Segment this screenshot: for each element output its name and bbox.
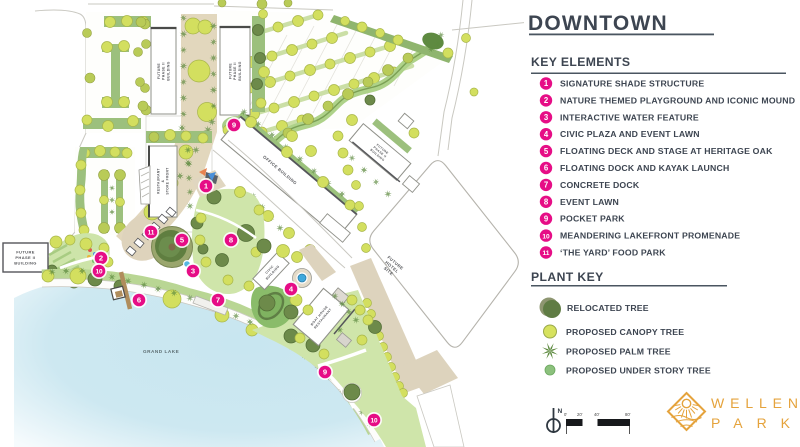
- svg-text:FUTURE: FUTURE: [229, 63, 233, 79]
- svg-text:7: 7: [544, 181, 548, 190]
- svg-text:NATURE THEMED PLAYGROUND AND I: NATURE THEMED PLAYGROUND AND ICONIC MOUN…: [560, 95, 795, 105]
- svg-text:FUTURE: FUTURE: [16, 249, 35, 254]
- svg-text:4: 4: [544, 130, 549, 139]
- svg-text:8: 8: [229, 236, 233, 245]
- svg-text:0′: 0′: [564, 412, 567, 417]
- svg-text:FUTURE: FUTURE: [157, 63, 161, 79]
- svg-text:2: 2: [544, 96, 549, 105]
- svg-text:6: 6: [544, 164, 549, 173]
- svg-text:10: 10: [542, 233, 550, 240]
- svg-text:80′: 80′: [625, 412, 631, 417]
- svg-text:RESTAURANT: RESTAURANT: [157, 168, 161, 194]
- svg-text:1: 1: [544, 79, 549, 88]
- svg-text:BUILDING: BUILDING: [14, 261, 37, 266]
- svg-text:11: 11: [543, 250, 550, 257]
- svg-text:5: 5: [544, 147, 549, 156]
- svg-text:DOWNTOWN: DOWNTOWN: [528, 12, 668, 35]
- svg-text:PLANT KEY: PLANT KEY: [531, 270, 604, 284]
- svg-text:PHASE II: PHASE II: [15, 255, 35, 260]
- svg-text:FLOATING DOCK AND KAYAK LAUNCH: FLOATING DOCK AND KAYAK LAUNCH: [560, 163, 729, 173]
- svg-text:PHASE II: PHASE II: [162, 62, 166, 80]
- svg-text:CIVIC PLAZA AND EVENT LAWN: CIVIC PLAZA AND EVENT LAWN: [560, 129, 700, 139]
- svg-text:&: &: [161, 179, 165, 182]
- svg-text:MEANDERING LAKEFRONT PROMENADE: MEANDERING LAKEFRONT PROMENADE: [560, 231, 740, 241]
- svg-text:PHASE II: PHASE II: [233, 62, 237, 80]
- svg-text:9: 9: [544, 214, 549, 223]
- svg-text:3: 3: [191, 267, 195, 276]
- svg-text:BUILDING: BUILDING: [238, 61, 242, 81]
- svg-text:3: 3: [544, 113, 549, 122]
- svg-text:PROPOSED PALM TREE: PROPOSED PALM TREE: [566, 347, 671, 357]
- svg-text:9: 9: [232, 121, 236, 130]
- svg-text:8: 8: [544, 198, 549, 207]
- svg-text:PROPOSED UNDER STORY TREE: PROPOSED UNDER STORY TREE: [566, 366, 711, 376]
- svg-text:CONCRETE DOCK: CONCRETE DOCK: [560, 180, 640, 190]
- svg-text:POCKET PARK: POCKET PARK: [560, 214, 625, 224]
- svg-text:SIGNATURE SHADE STRUCTURE: SIGNATURE SHADE STRUCTURE: [560, 79, 704, 89]
- svg-text:10: 10: [95, 269, 103, 276]
- svg-text:2: 2: [99, 254, 103, 263]
- svg-text:EVENT LAWN: EVENT LAWN: [560, 197, 619, 207]
- svg-text:7: 7: [216, 296, 220, 305]
- svg-text:STORE FRONT: STORE FRONT: [166, 167, 170, 194]
- svg-text:6: 6: [137, 296, 141, 305]
- svg-text:INTERACTIVE WATER FEATURE: INTERACTIVE WATER FEATURE: [560, 112, 699, 122]
- svg-text:‘THE YARD’ FOOD PARK: ‘THE YARD’ FOOD PARK: [560, 248, 666, 258]
- svg-text:PROPOSED CANOPY TREE: PROPOSED CANOPY TREE: [566, 327, 684, 337]
- svg-text:FLOATING DECK AND STAGE AT HER: FLOATING DECK AND STAGE AT HERITAGE OAK: [560, 146, 773, 156]
- svg-text:20′: 20′: [577, 412, 583, 417]
- svg-text:11: 11: [148, 230, 155, 237]
- svg-text:RELOCATED TREE: RELOCATED TREE: [567, 303, 649, 313]
- svg-text:10: 10: [370, 418, 378, 425]
- svg-text:KEY ELEMENTS: KEY ELEMENTS: [531, 55, 630, 69]
- svg-text:N: N: [558, 408, 563, 415]
- svg-text:GRAND LAKE: GRAND LAKE: [143, 349, 179, 354]
- svg-text:9: 9: [323, 368, 327, 377]
- svg-text:BUILDING: BUILDING: [166, 61, 170, 81]
- svg-text:40′: 40′: [594, 412, 600, 417]
